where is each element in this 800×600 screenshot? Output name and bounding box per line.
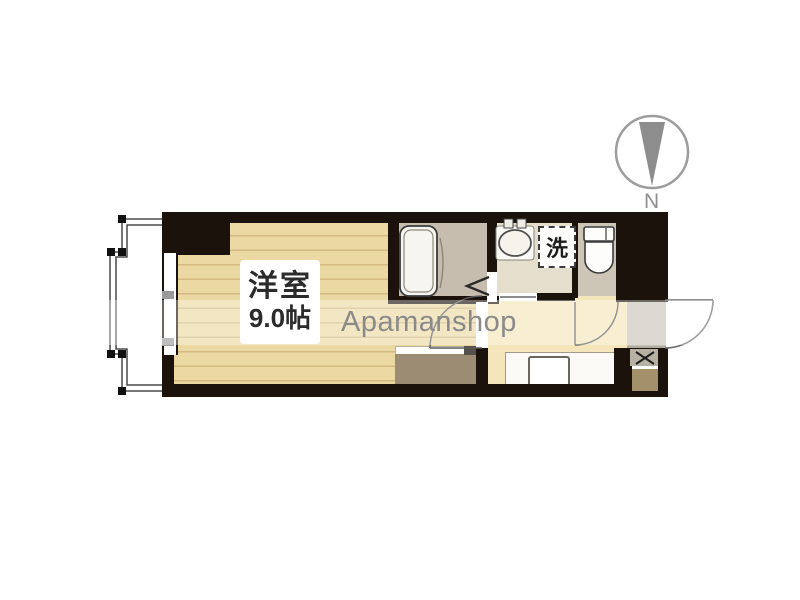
compass-icon <box>616 116 688 188</box>
room-size: 9.0帖 <box>249 304 311 334</box>
stove-burner-icon <box>636 352 654 364</box>
north-label: N <box>644 190 659 214</box>
wash-basin <box>496 219 534 260</box>
watermark: Apamanshop <box>341 306 517 339</box>
toilet <box>584 227 614 273</box>
room-label: 洋室 9.0帖 <box>240 260 320 344</box>
bathtub <box>400 226 443 296</box>
washing-machine-space: 洗 <box>538 226 576 268</box>
room-name: 洋室 <box>248 270 312 305</box>
floorplan-image: Apamanshop 洋室 9.0帖 洗 N <box>0 0 800 600</box>
bath-folding-door <box>467 277 489 295</box>
washer-symbol: 洗 <box>546 231 568 263</box>
